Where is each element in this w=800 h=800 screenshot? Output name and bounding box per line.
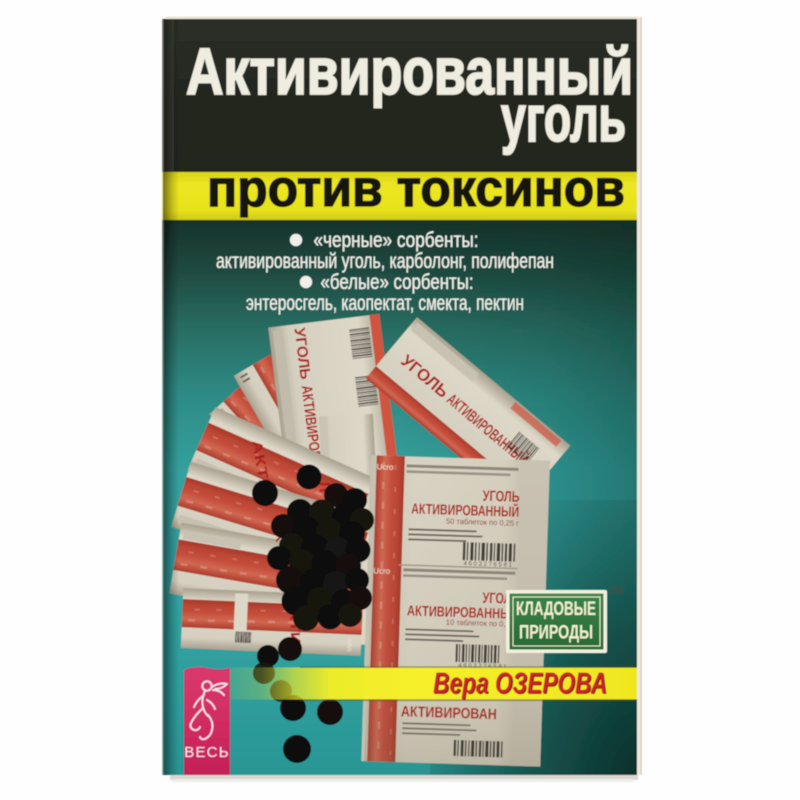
svg-text:уголь: уголь (501, 81, 626, 155)
svg-text:«черные» сорбенты:: «черные» сорбенты: (314, 229, 479, 252)
svg-text:активированный уголь, карболон: активированный уголь, карболонг, полифеп… (216, 250, 554, 273)
svg-text:против токсинов: против токсинов (207, 160, 625, 218)
svg-text:ПРИРОДЫ: ПРИРОДЫ (519, 623, 593, 644)
svg-text:энтеросгель, каопектат, смекта: энтеросгель, каопектат, смекта, пектин (246, 292, 524, 315)
svg-text:Ucro: Ucro (347, 638, 354, 652)
svg-text:TM: TM (609, 586, 623, 597)
svg-text:«белые» сорбенты:: «белые» сорбенты: (321, 271, 474, 294)
svg-text:КЛАДОВЫЕ: КЛАДОВЫЕ (516, 599, 596, 620)
svg-text:ВЕСЬ: ВЕСЬ (184, 744, 230, 761)
svg-text:Вера ОЗЕРОВА: Вера ОЗЕРОВА (433, 667, 607, 700)
